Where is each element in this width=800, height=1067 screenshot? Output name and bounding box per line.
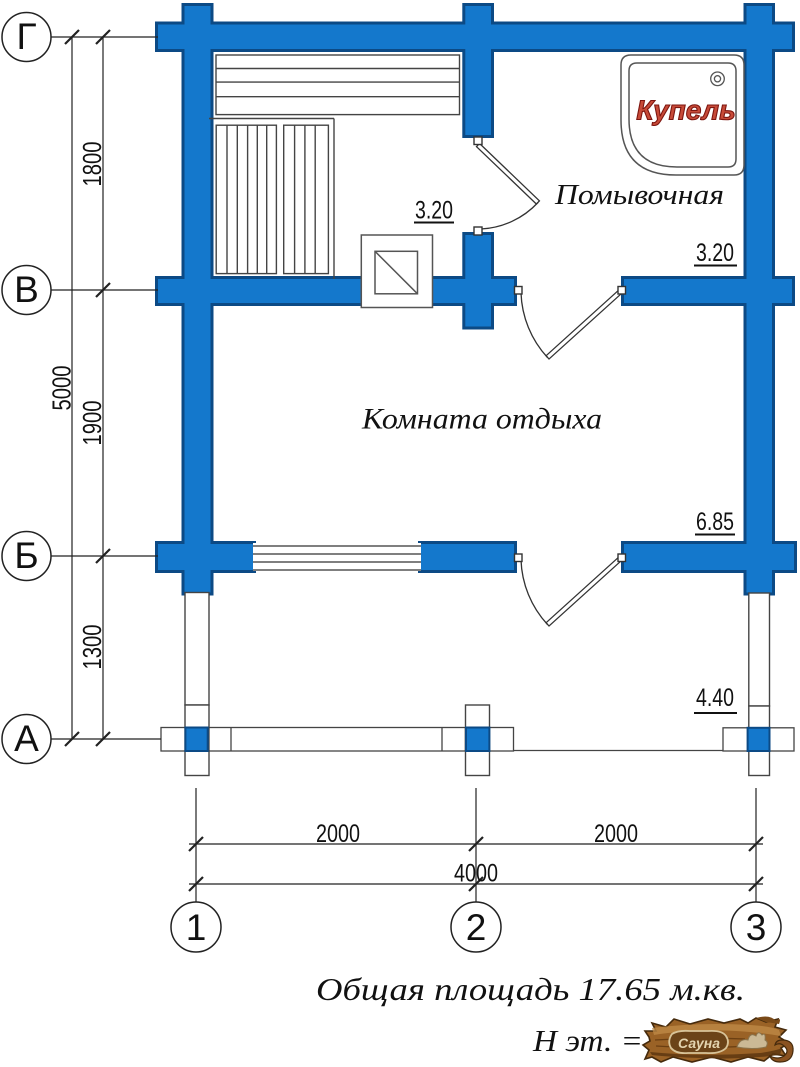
svg-text:В: В: [14, 269, 39, 310]
svg-text:Н эт. =: Н эт. =: [532, 1023, 643, 1058]
svg-text:Купель: Купель: [636, 95, 735, 126]
svg-text:Сауна: Сауна: [678, 1035, 720, 1051]
svg-text:1300: 1300: [77, 625, 107, 670]
svg-text:1: 1: [186, 907, 207, 948]
svg-text:Комната отдыха: Комната отдыха: [361, 403, 602, 436]
svg-text:Г: Г: [16, 16, 36, 57]
svg-text:Общая площадь 17.65 м.кв.: Общая площадь 17.65 м.кв.: [316, 971, 745, 1007]
svg-text:2000: 2000: [316, 820, 360, 848]
svg-text:А: А: [14, 718, 39, 759]
svg-text:2: 2: [466, 907, 487, 948]
svg-text:5000: 5000: [47, 366, 77, 411]
svg-text:1800: 1800: [77, 142, 107, 187]
svg-text:4000: 4000: [454, 860, 498, 888]
svg-text:3: 3: [746, 907, 767, 948]
svg-text:Б: Б: [14, 535, 38, 576]
svg-text:3.20: 3.20: [415, 197, 453, 225]
svg-text:4.40: 4.40: [696, 684, 734, 712]
svg-text:2000: 2000: [594, 820, 638, 848]
svg-text:1900: 1900: [77, 401, 107, 446]
svg-text:6.85: 6.85: [696, 508, 734, 536]
svg-text:3.20: 3.20: [696, 239, 734, 267]
svg-text:Помывочная: Помывочная: [554, 179, 724, 211]
